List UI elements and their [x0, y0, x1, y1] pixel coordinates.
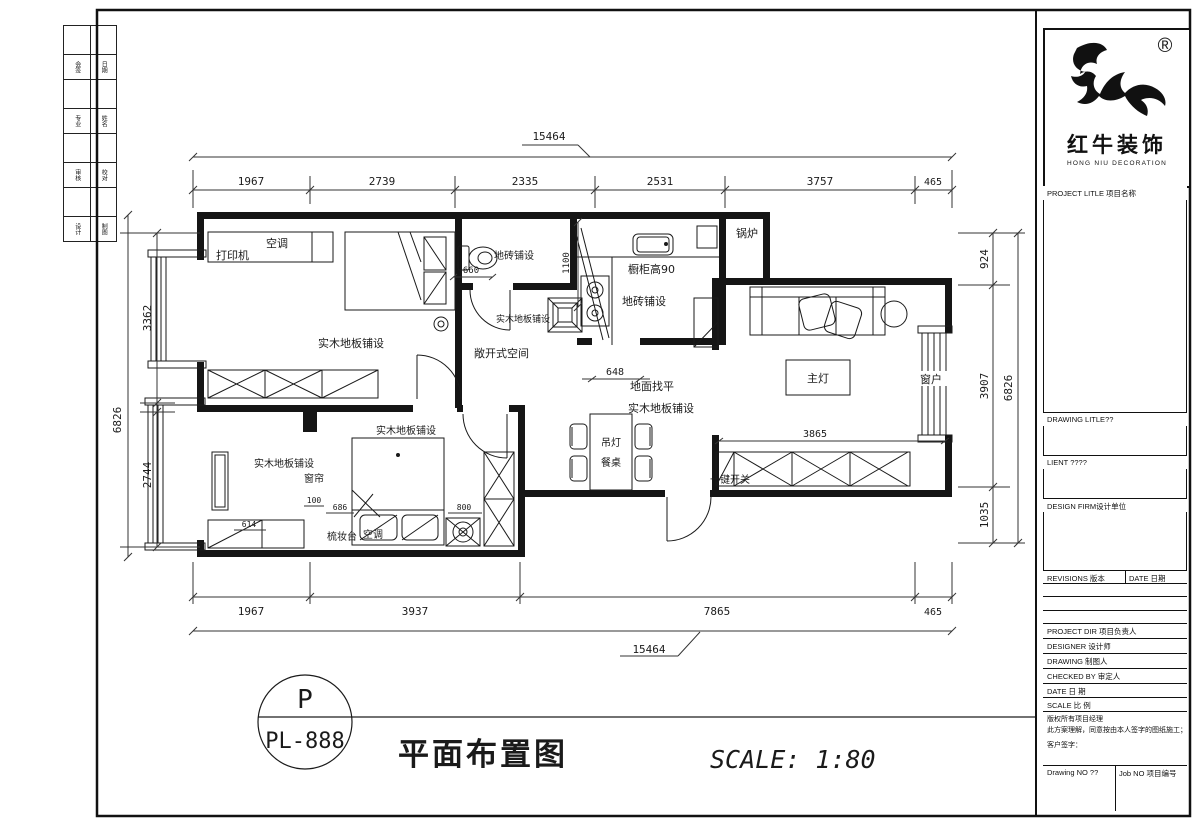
label-pendant: 吊灯: [601, 437, 621, 449]
label-open-space: 敞开式空间: [474, 346, 529, 360]
label-wood-room2-left: 实木地板铺设: [254, 457, 314, 470]
walls: [197, 212, 952, 557]
dim-bottom-overall: 15464: [632, 643, 665, 656]
brand-name-en: HONG NIU DECORATION: [1045, 160, 1189, 167]
dim-right-2: 3907: [978, 373, 991, 400]
dim-left-1: 3362: [141, 305, 154, 332]
tb-note-2: 此方案理解，同意按由本人签字的图纸施工；: [1047, 725, 1187, 736]
label-leveling: 地面找平: [630, 379, 674, 393]
title-block: ® 红牛装饰 HONG NIU DECORATION PROJECT LITLE…: [1035, 10, 1194, 816]
dim-left-overall: 6826: [111, 407, 124, 434]
dim-686: 686: [333, 503, 348, 512]
sofa: [750, 287, 907, 340]
tb-revisions-header: REVISIONS 版本 DATE 日期: [1043, 570, 1187, 583]
room2-wardrobe: [484, 452, 514, 546]
drawing-sheet: { "strip": { "labels": ["会签","日期","专业","…: [0, 0, 1200, 824]
floor-drain: [548, 298, 582, 332]
tb-scale: SCALE 比 例: [1043, 697, 1187, 711]
dim-1100: 1100: [562, 252, 572, 274]
dim-right-overall: 6826: [1002, 375, 1015, 402]
tb-note-1: 版权所有项目经理: [1047, 714, 1187, 725]
tb-job-no: Job NO 项目编号: [1119, 768, 1177, 779]
dim-right-1: 924: [978, 249, 991, 269]
entry-door: [667, 497, 711, 541]
hongniu-logo: ®: [1047, 30, 1187, 122]
dim-top-3: 2335: [512, 175, 539, 188]
tb-drawing-by: DRAWING 制图人: [1043, 653, 1187, 668]
dim-100: 100: [307, 496, 322, 505]
tb-design-firm: DESIGN FIRM设计单位: [1043, 498, 1187, 512]
plan-scale: SCALE: 1:80: [710, 745, 876, 774]
dim-800: 800: [457, 503, 472, 512]
tb-number-row: Drawing NO ?? Job NO 项目编号: [1043, 765, 1187, 810]
tb-checked-by: CHECKED BY 审定人: [1043, 668, 1187, 683]
logo-box: ® 红牛装饰 HONG NIU DECORATION: [1043, 28, 1191, 188]
dim-top-6: 465: [924, 177, 942, 188]
washing-machine: [446, 518, 480, 546]
label-tile-bath: 地砖铺设: [494, 249, 534, 262]
kitchen-counter: [575, 226, 719, 347]
tb-project-title: PROJECT LITLE 项目名称: [1043, 186, 1187, 200]
label-tile-kitchen: 地砖铺设: [622, 294, 666, 308]
dim-top-1: 1967: [238, 175, 265, 188]
room2-bed: [352, 438, 444, 545]
tb-client: LIENT ????: [1043, 455, 1187, 469]
label-ac1: 空调: [266, 236, 288, 250]
registered-mark: ®: [1158, 35, 1173, 57]
tb-drawing-title: DRAWING LITLE??: [1043, 412, 1187, 426]
label-wood-hall: 实木地板铺设: [496, 313, 550, 325]
label-wood-dining: 实木地板铺设: [628, 401, 694, 415]
sheet-letter: P: [297, 685, 313, 715]
label-table: 餐桌: [601, 456, 621, 469]
label-printer: 打印机: [216, 248, 249, 262]
room1-wardrobe: [208, 370, 378, 398]
label-wood-room2-top: 实木地板铺设: [376, 424, 436, 437]
dim-3865: 3865: [803, 429, 827, 440]
dim-614: 614: [242, 520, 257, 529]
dim-top-5: 3757: [807, 175, 834, 188]
dim-bottom-2: 3937: [402, 605, 429, 618]
dim-top-2: 2739: [369, 175, 396, 188]
dim-top-overall: 15464: [532, 130, 565, 143]
tb-designer: DESIGNER 设计师: [1043, 638, 1187, 653]
dim-bottom-3: 7865: [704, 605, 731, 618]
room2-door: [463, 414, 507, 458]
tb-drawing-no: Drawing NO ??: [1047, 768, 1098, 777]
dim-bottom-1: 1967: [238, 605, 265, 618]
label-curtain: 窗帘: [304, 472, 324, 485]
tb-date: DATE 日 期: [1043, 683, 1187, 697]
bird-logo-icon: [1071, 43, 1166, 116]
room1-door: [417, 355, 461, 399]
floor-plan-canvas: 15464 1967 2739 2335 2531 3757 465 1967 …: [0, 0, 1200, 824]
plan-title: 平面布置图: [398, 737, 568, 773]
label-window: 窗户: [920, 372, 942, 386]
dim-right-3: 1035: [978, 502, 991, 529]
ceiling-symbol: [434, 317, 448, 331]
dim-bottom-4: 465: [924, 607, 942, 618]
sheet-number: PL-888: [265, 729, 344, 754]
tb-revisions-label: REVISIONS 版本: [1047, 574, 1105, 583]
label-wood-room1: 实木地板铺设: [318, 336, 384, 350]
brand-name: 红牛装饰: [1045, 129, 1189, 159]
dining-table: [570, 414, 652, 490]
label-boiler: 锅炉: [736, 227, 758, 240]
dim-left-2: 2744: [141, 461, 154, 488]
label-cabinet90: 橱柜高90: [628, 262, 675, 276]
dim-top-4: 2531: [647, 175, 674, 188]
label-dresser: 梳妆台: [327, 530, 357, 543]
tb-notes: 版权所有项目经理 此方案理解，同意按由本人签字的图纸施工； 客户签字：: [1043, 711, 1187, 765]
room1-bed: [345, 232, 455, 310]
dim-648: 648: [606, 367, 624, 378]
tb-note-3: 客户签字：: [1047, 740, 1187, 751]
label-main-light: 主灯: [807, 372, 829, 385]
dim-660: 660: [463, 266, 479, 276]
drawing-title-block: P PL-888 平面布置图 SCALE: 1:80: [258, 675, 1035, 774]
label-ac2: 空调: [363, 528, 383, 541]
tb-project-dir: PROJECT DIR 项目负责人: [1043, 623, 1187, 638]
window-label-group: 窗户: [912, 371, 950, 386]
label-one-key: 一键开关: [710, 473, 750, 486]
